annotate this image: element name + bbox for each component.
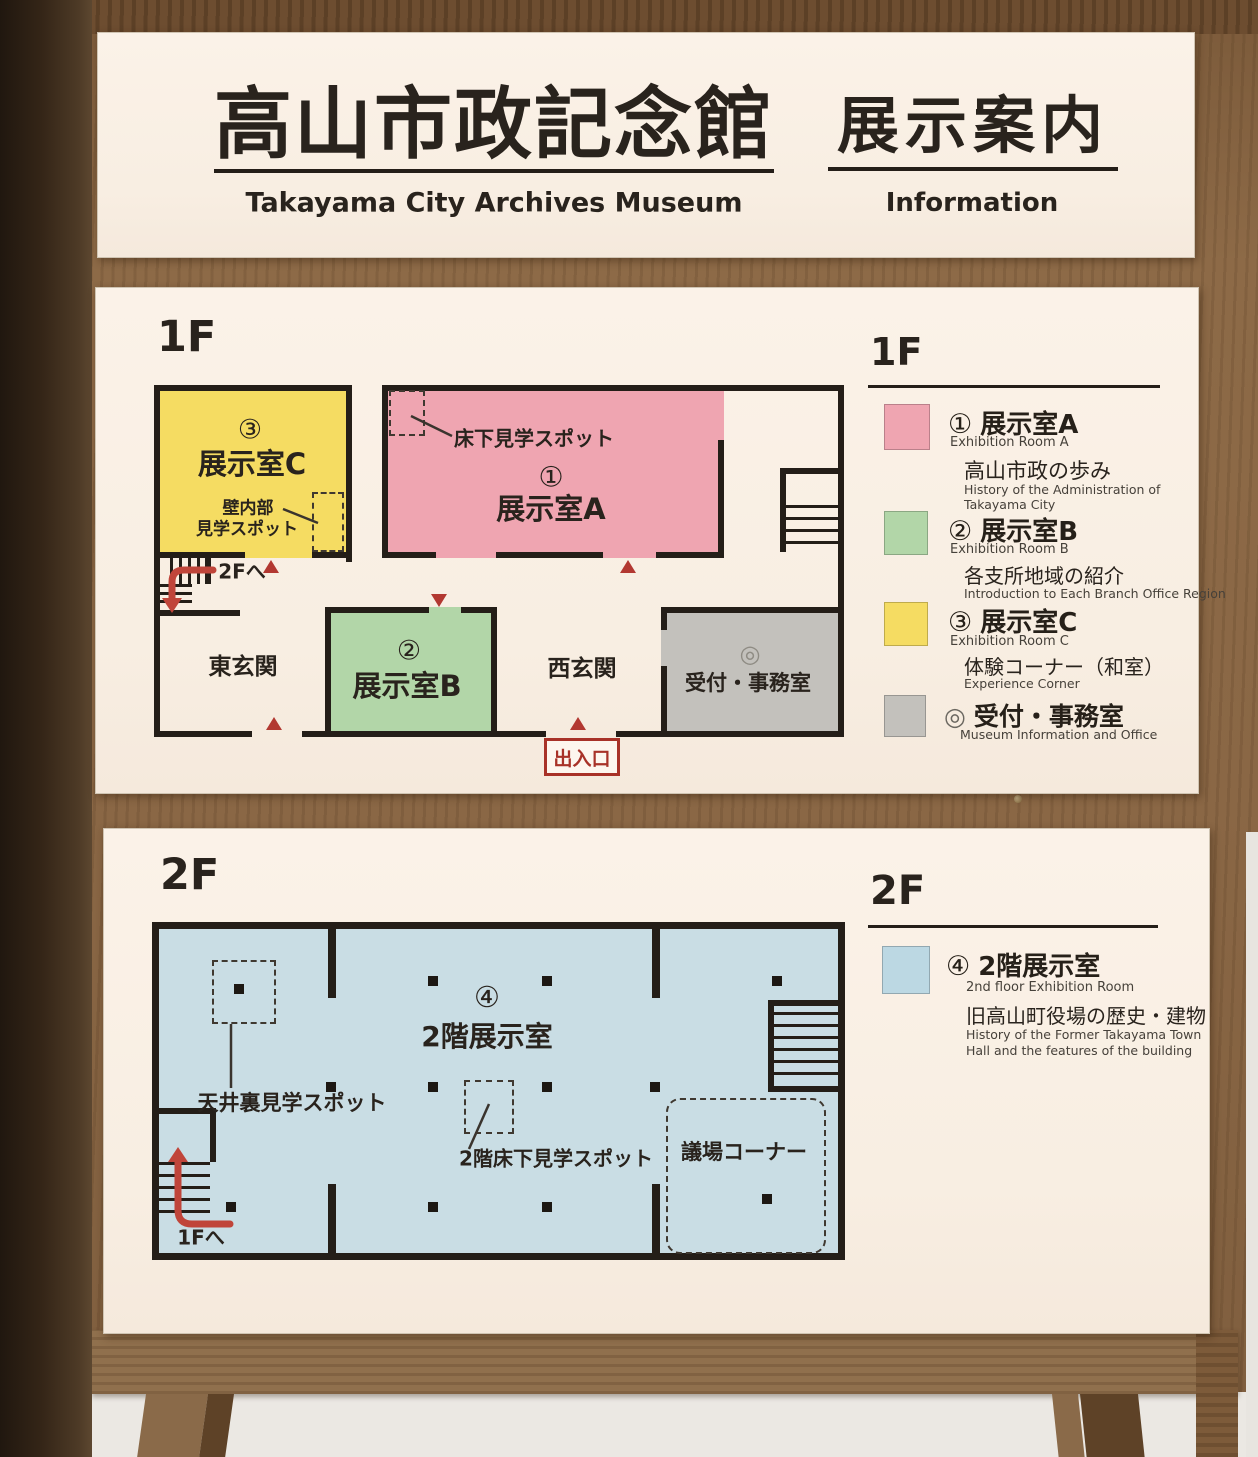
stairs-step (786, 541, 838, 544)
room-a-label: 展示室A (496, 486, 605, 528)
wall-segment (388, 552, 436, 558)
legend-name-jp: 2階展示室 (978, 946, 1100, 983)
wall-segment (152, 922, 845, 929)
wall-segment (718, 440, 724, 558)
legend-number: ④ (946, 951, 970, 982)
wall-segment (491, 607, 497, 731)
stairs-step (170, 552, 173, 584)
stairs-step (156, 1162, 210, 1165)
legend2f-heading: 2F (870, 868, 925, 914)
legend-desc-en: Hall and the features of the building (966, 1043, 1192, 1058)
floor1-label: 1F (157, 312, 216, 362)
room-b-number: ② (397, 636, 421, 667)
entry-arrow-icon (266, 717, 282, 730)
stairs-step (774, 1072, 838, 1075)
doorway-sign: 出入口 (544, 738, 620, 776)
stairs-step (154, 592, 192, 595)
legend2f-underline (868, 925, 1158, 928)
wall-stub (328, 922, 336, 998)
stairs-step (786, 505, 838, 508)
wall-segment (325, 607, 331, 731)
room-b-label: 展示室B (352, 663, 461, 705)
legend-swatch-room-a (884, 404, 930, 450)
wall-segment (302, 731, 546, 737)
wall-segment (312, 552, 352, 558)
wall-segment (382, 385, 388, 558)
stairs-wall (780, 468, 844, 474)
legend-desc-en: History of the Former Takayama Town (966, 1027, 1201, 1042)
entry-arrow-icon (570, 717, 586, 730)
legend-desc-jp: 高山市政の歩み (964, 455, 1111, 485)
stairs-step (156, 1186, 210, 1189)
wall-background-right (1246, 832, 1258, 1457)
wall-segment (152, 1253, 845, 1260)
wall-interior-spot-box (312, 492, 344, 552)
pillar (542, 1202, 552, 1212)
stairs-wall (768, 1086, 838, 1092)
stairs-wall (154, 610, 240, 616)
assembly-corner-box (666, 1098, 826, 1254)
legend-name-en: Exhibition Room B (950, 542, 1069, 557)
legend-name-en: 2nd floor Exhibition Room (966, 980, 1134, 995)
wall-segment (838, 391, 844, 737)
pillar (428, 976, 438, 986)
museum-title-en: Takayama City Archives Museum (246, 188, 743, 219)
pillar (762, 1194, 772, 1204)
to-2f-label: 2Fへ (218, 556, 266, 585)
floor2-label: 2F (160, 850, 219, 900)
museum-information-board-photo: 高山市政記念館 Takayama City Archives Museum 展示… (0, 0, 1258, 1457)
museum-title-jp: 高山市政記念館 (214, 62, 774, 174)
pillar (542, 976, 552, 986)
assembly-corner-label: 議場コーナー (681, 1136, 807, 1166)
pillar (542, 1082, 552, 1092)
wall-stub (652, 1184, 660, 1260)
stairs-step (774, 1024, 838, 1027)
legend-swatch-room-c (884, 602, 928, 646)
doorway-label: 出入口 (553, 744, 610, 771)
stairs-step (774, 1012, 838, 1015)
stairs-step (774, 1036, 838, 1039)
legend-swatch-room-b (884, 511, 928, 555)
stairs-step (786, 529, 838, 532)
screw-icon (1014, 795, 1022, 803)
to-1f-label: 1Fへ (177, 1222, 225, 1251)
legend-desc-en: Experience Corner (964, 676, 1080, 691)
title-sign-panel: 高山市政記念館 Takayama City Archives Museum 展示… (97, 32, 1195, 258)
stairs-step (156, 1198, 210, 1201)
stairs-step (154, 600, 192, 603)
wall-stub (328, 1184, 336, 1260)
floor2-room-label: 2階展示室 (421, 1015, 552, 1055)
legend-name-en: Exhibition Room A (950, 435, 1069, 450)
legend-swatch-reception (884, 695, 926, 737)
stairs-step (786, 517, 838, 520)
reception-symbol: ◎ (740, 640, 761, 668)
stairs-step (156, 1210, 210, 1213)
east-entrance-label: 東玄関 (209, 647, 278, 681)
underfloor-spot-box (389, 390, 425, 436)
wall-segment (325, 607, 429, 613)
wall-segment (154, 385, 160, 737)
legend-desc-en: Introduction to Each Branch Office Regio… (964, 586, 1226, 601)
legend-name-en: Exhibition Room C (950, 634, 1069, 649)
stand-leg-right-rear (1080, 1394, 1145, 1457)
title-underline (214, 169, 774, 173)
wall-segment (616, 731, 844, 737)
stairs-step (188, 552, 191, 584)
wall-segment (382, 385, 844, 391)
pillar (428, 1202, 438, 1212)
wood-cross-rail (92, 1330, 1238, 1394)
wall-segment (154, 731, 252, 737)
room-c-label: 展示室C (198, 441, 306, 483)
legend-desc-en: Takayama City (964, 497, 1055, 512)
pillar (234, 984, 244, 994)
wall-segment (346, 385, 352, 562)
stairs-step (197, 552, 200, 584)
info-heading-en: Information (886, 188, 1059, 218)
floor2-underfloor-spot-box (464, 1080, 514, 1134)
underfloor-spot-label: 床下見学スポット (454, 423, 614, 452)
wall-segment (838, 922, 845, 1260)
entry-arrow-icon (620, 560, 636, 573)
stairs-step (154, 584, 192, 587)
wall-segment (656, 552, 724, 558)
wall-segment (154, 385, 352, 391)
info-heading-jp: 展示案内 (837, 75, 1109, 165)
legend1f-heading: 1F (870, 330, 922, 374)
stairs-step (156, 1174, 210, 1177)
ceiling-spot-label: 天井裏見学スポット (198, 1087, 387, 1117)
wall-interior-spot-label-2: 見学スポット (196, 515, 298, 540)
wall-segment (496, 552, 603, 558)
entry-arrow-icon (431, 594, 447, 607)
stairs-wall (768, 1000, 838, 1006)
west-entrance-label: 西玄関 (548, 649, 617, 683)
legend-name-en: Museum Information and Office (960, 727, 1157, 742)
stairs-step (774, 1048, 838, 1051)
stairs-wall (205, 552, 211, 584)
legend1f-underline (868, 385, 1160, 388)
ceiling-spot-box (212, 960, 276, 1024)
legend-item-floor2: ④ 2階展示室 (946, 946, 1100, 983)
reception-label: 受付・事務室 (685, 667, 811, 697)
pillar (428, 1082, 438, 1092)
pillar (772, 976, 782, 986)
wall-segment (661, 666, 667, 731)
pillar (650, 1082, 660, 1092)
stairs-wall (780, 468, 786, 552)
stand-post-left (0, 0, 92, 1457)
legend-swatch-floor2 (882, 946, 930, 994)
wall-segment (661, 613, 667, 630)
stairs-step (179, 552, 182, 584)
stand-post-right (1196, 1330, 1238, 1457)
floor2-room-number: ④ (474, 980, 500, 1014)
legend-desc-jp: 各支所地域の紹介 (964, 560, 1124, 589)
legend-desc-en: History of the Administration of (964, 482, 1160, 497)
legend-desc-jp: 旧高山町役場の歴史・建物 (966, 1000, 1206, 1029)
info-underline (828, 167, 1118, 171)
floor2-underfloor-spot-label: 2階床下見学スポット (459, 1143, 653, 1172)
pillar (226, 1202, 236, 1212)
stand-leg-left (137, 1394, 208, 1457)
wall-stub (652, 922, 660, 998)
wood-top-frame (0, 0, 1258, 34)
stairs-step (774, 1060, 838, 1063)
wall-segment (661, 607, 838, 613)
